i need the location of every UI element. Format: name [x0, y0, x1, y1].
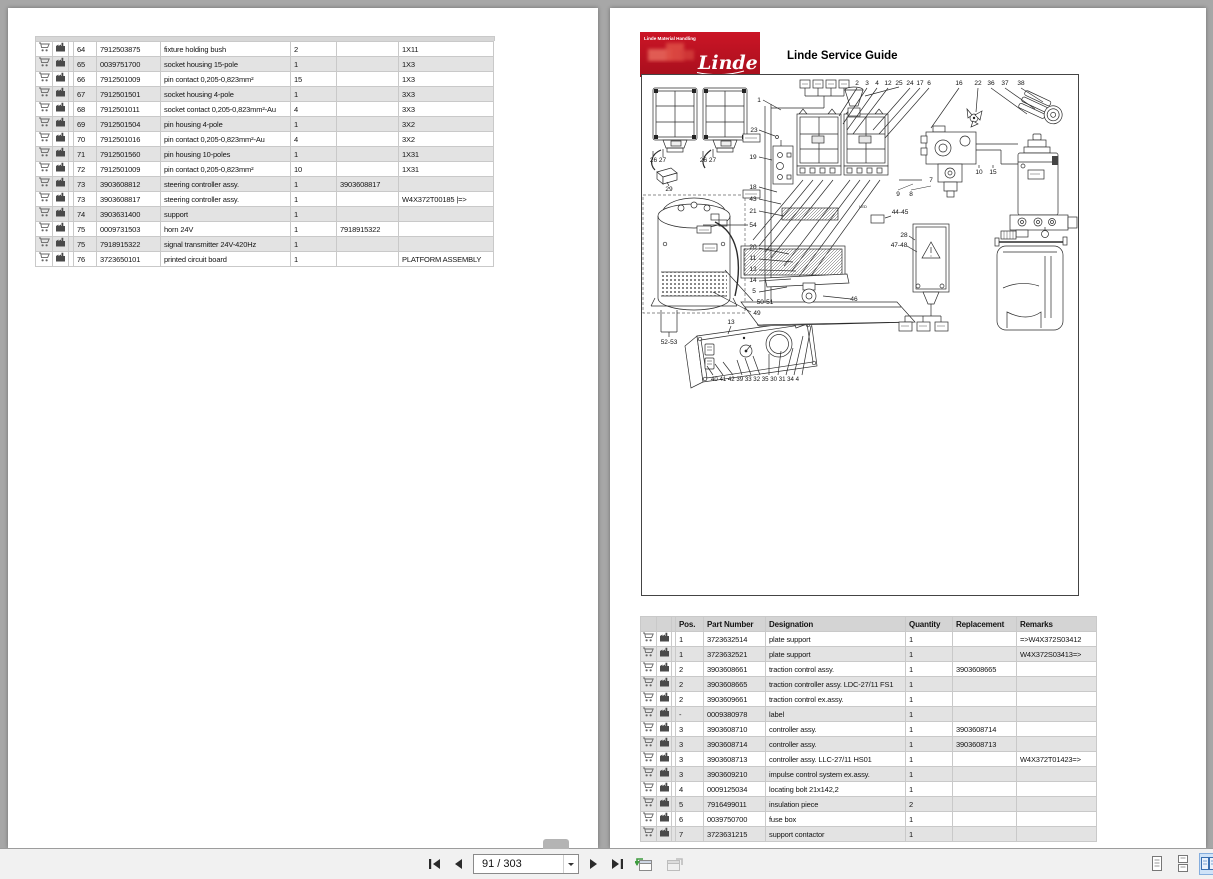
part-number-cell: 3903608713 — [704, 752, 766, 767]
next-view-icon — [665, 856, 684, 872]
add-to-cart-icon[interactable] — [36, 147, 53, 162]
pos-cell: 69 — [74, 117, 97, 132]
document-page-right: Linde Material Handling Linde Linde Serv… — [610, 8, 1206, 848]
factory-icon[interactable] — [657, 782, 672, 797]
parts-table-row: 763723650101printed circuit board1PLATFO… — [36, 252, 494, 267]
add-to-cart-icon[interactable] — [641, 767, 657, 782]
parts-table-row: 73723631215support contactor1 — [641, 827, 1097, 842]
diagram-callout: 2 — [855, 80, 859, 87]
facing-pages-layout-button[interactable] — [1200, 854, 1213, 874]
part-number-cell: 7918915322 — [97, 237, 161, 252]
diagram-callout: 38 — [1017, 80, 1025, 87]
part-number-cell: 0039751700 — [97, 57, 161, 72]
designation-cell: support — [161, 207, 291, 222]
remarks-cell: 3X3 — [399, 102, 494, 117]
designation-cell: pin housing 4-pole — [161, 117, 291, 132]
quantity-cell: 1 — [291, 177, 337, 192]
add-to-cart-icon[interactable] — [641, 647, 657, 662]
replacement-cell — [953, 812, 1017, 827]
parts-table-row: 33903609210impulse control system ex.ass… — [641, 767, 1097, 782]
diagram-callout: 19 — [749, 154, 757, 161]
replacement-cell: 3903608817 — [337, 177, 399, 192]
remarks-cell: 3X2 — [399, 117, 494, 132]
pos-cell: 66 — [74, 72, 97, 87]
add-to-cart-icon[interactable] — [36, 117, 53, 132]
diagram-callout: 15 — [989, 169, 997, 176]
part-number-cell: 3723632521 — [704, 647, 766, 662]
column-header: Pos. — [676, 617, 704, 632]
part-number-cell: 3903608714 — [704, 737, 766, 752]
part-number-cell: 3723632514 — [704, 632, 766, 647]
factory-icon[interactable] — [53, 72, 69, 87]
pos-cell: 76 — [74, 252, 97, 267]
remarks-cell: 1X11 — [399, 42, 494, 57]
remarks-cell: W4X372S03413=> — [1017, 647, 1097, 662]
factory-icon[interactable] — [657, 812, 672, 827]
parts-table-row: 13723632521plate support1W4X372S03413=> — [641, 647, 1097, 662]
part-number-cell: 3903608661 — [704, 662, 766, 677]
diagram-callout: 1 — [757, 97, 761, 104]
logo-top-text: Linde Material Handling — [644, 36, 696, 41]
designation-cell: controller assy. — [766, 722, 906, 737]
replacement-cell — [953, 707, 1017, 722]
designation-cell: pin contact 0,205-0,823mm² — [161, 162, 291, 177]
pos-cell: 64 — [74, 42, 97, 57]
pos-cell: 2 — [676, 677, 704, 692]
combobox-dropdown-icon[interactable] — [563, 855, 578, 873]
parts-table-row: 23903608661traction control assy.1390360… — [641, 662, 1097, 677]
diagram-callout: 43 — [749, 196, 757, 203]
pos-cell: 2 — [676, 692, 704, 707]
designation-cell: pin contact 0,205-0,823mm² — [161, 72, 291, 87]
factory-icon[interactable] — [53, 177, 69, 192]
parts-table-row: 647912503875fixture holding bush21X11 — [36, 42, 494, 57]
factory-icon[interactable] — [657, 827, 672, 842]
pos-cell: 7 — [676, 827, 704, 842]
add-to-cart-icon[interactable] — [36, 252, 53, 267]
factory-icon[interactable] — [53, 132, 69, 147]
designation-cell: traction control assy. — [766, 662, 906, 677]
add-to-cart-icon[interactable] — [641, 752, 657, 767]
part-number-cell: 3903608812 — [97, 177, 161, 192]
add-to-cart-icon[interactable] — [36, 192, 53, 207]
left-parts-table: 647912503875fixture holding bush21X11650… — [35, 41, 494, 267]
diagram-callout: 18 — [749, 184, 757, 191]
designation-cell: label — [766, 707, 906, 722]
replacement-cell — [953, 767, 1017, 782]
designation-cell: fixture holding bush — [161, 42, 291, 57]
quantity-cell: 1 — [906, 692, 953, 707]
diagram-callout: 37 — [1001, 80, 1009, 87]
diagram-callout: 23 — [750, 127, 758, 134]
parts-table-row: 727912501009pin contact 0,205-0,823mm²10… — [36, 162, 494, 177]
remarks-cell: W4X372T01423=> — [1017, 752, 1097, 767]
part-number-cell: 3903608710 — [704, 722, 766, 737]
remarks-cell: PLATFORM ASSEMBLY — [399, 252, 494, 267]
page-title: Linde Service Guide — [787, 50, 898, 62]
column-header: Designation — [766, 617, 906, 632]
factory-icon[interactable] — [53, 162, 69, 177]
pos-cell: 68 — [74, 102, 97, 117]
parts-table-row: 57916499011insulation piece2 — [641, 797, 1097, 812]
triangle-right-icon — [588, 858, 599, 870]
diagram-callout: 13 — [727, 319, 735, 326]
add-to-cart-icon[interactable] — [641, 737, 657, 752]
diagram-callout: 26 27 — [650, 157, 667, 164]
quantity-cell: 1 — [291, 207, 337, 222]
replacement-cell — [337, 42, 399, 57]
quantity-cell: 15 — [291, 72, 337, 87]
part-number-cell: 3903609661 — [704, 692, 766, 707]
remarks-cell — [399, 177, 494, 192]
diagram-callout: LED — [859, 204, 867, 209]
parts-table-row: 33903608714controller assy.13903608713 — [641, 737, 1097, 752]
quantity-cell: 1 — [291, 237, 337, 252]
part-number-cell: 7912501501 — [97, 87, 161, 102]
linde-logo: Linde Material Handling Linde — [640, 32, 760, 77]
factory-icon[interactable] — [657, 662, 672, 677]
part-number-cell: 7912501560 — [97, 147, 161, 162]
quantity-cell: 1 — [291, 57, 337, 72]
single-page-layout-button[interactable] — [1148, 854, 1166, 874]
remarks-cell — [1017, 737, 1097, 752]
factory-icon[interactable] — [657, 797, 672, 812]
part-number-cell: 7912501009 — [97, 72, 161, 87]
pos-cell: 4 — [676, 782, 704, 797]
factory-icon[interactable] — [53, 57, 69, 72]
pos-cell: - — [676, 707, 704, 722]
designation-cell: socket housing 4-pole — [161, 87, 291, 102]
factory-icon[interactable] — [657, 632, 672, 647]
triangle-left-icon — [453, 858, 464, 870]
diagram-callout: 26 27 — [700, 157, 717, 164]
factory-icon[interactable] — [53, 222, 69, 237]
right-parts-table: Pos.Part NumberDesignationQuantityReplac… — [640, 616, 1097, 842]
diagram-callout: 24 — [906, 80, 914, 87]
single-page-layout-icon — [1149, 855, 1165, 873]
add-to-cart-icon[interactable] — [641, 782, 657, 797]
parts-diagram-figure: 2341225241761622363738123191843215420111… — [641, 74, 1079, 596]
designation-cell: socket housing 15-pole — [161, 57, 291, 72]
diagram-callout: 8 — [909, 191, 913, 198]
factory-icon[interactable] — [657, 767, 672, 782]
left-parts-table-container: 647912503875fixture holding bush21X11650… — [35, 36, 495, 267]
add-to-cart-icon[interactable] — [641, 662, 657, 677]
designation-cell: plate support — [766, 647, 906, 662]
factory-icon[interactable] — [53, 117, 69, 132]
factory-icon[interactable] — [53, 87, 69, 102]
add-to-cart-icon[interactable] — [36, 87, 53, 102]
add-to-cart-icon[interactable] — [36, 132, 53, 147]
facing-pages-layout-icon — [1201, 855, 1213, 873]
parts-table-row: 33903608713controller assy. LLC-27/11 HS… — [641, 752, 1097, 767]
diagram-callout: 44-45 — [892, 209, 909, 216]
add-to-cart-icon[interactable] — [641, 692, 657, 707]
add-to-cart-icon[interactable] — [36, 177, 53, 192]
continuous-layout-icon — [1175, 855, 1191, 873]
factory-icon[interactable] — [53, 192, 69, 207]
quantity-cell: 1 — [291, 147, 337, 162]
pos-cell: 67 — [74, 87, 97, 102]
parts-table-row: -0009380978label1 — [641, 707, 1097, 722]
quantity-cell: 1 — [291, 87, 337, 102]
quantity-cell: 1 — [906, 812, 953, 827]
diagram-callout: 47-48 — [891, 242, 908, 249]
diagram-callout: 13 — [749, 266, 757, 273]
diagram-callout: 5 — [752, 288, 756, 295]
designation-cell: impulse control system ex.assy. — [766, 767, 906, 782]
remarks-cell — [399, 222, 494, 237]
part-number-cell: 0009380978 — [704, 707, 766, 722]
factory-icon[interactable] — [53, 237, 69, 252]
designation-cell: pin contact 0,205-0,823mm²-Au — [161, 132, 291, 147]
part-number-cell: 3903608665 — [704, 677, 766, 692]
replacement-cell — [337, 117, 399, 132]
parts-table-row: 650039751700socket housing 15-pole11X3 — [36, 57, 494, 72]
prev-page-button[interactable] — [451, 856, 466, 872]
page-layout-group — [1148, 854, 1213, 874]
pos-cell: 3 — [676, 752, 704, 767]
add-to-cart-icon[interactable] — [36, 72, 53, 87]
diagram-callout: 50-51 — [757, 299, 774, 306]
quantity-cell: 1 — [906, 752, 953, 767]
diagram-callout: 52-53 — [661, 339, 678, 346]
diagram-callout: 25 — [895, 80, 903, 87]
factory-icon[interactable] — [657, 752, 672, 767]
replacement-cell — [337, 252, 399, 267]
designation-cell: controller assy. — [766, 737, 906, 752]
designation-cell: locating bolt 21x142,2 — [766, 782, 906, 797]
factory-icon[interactable] — [657, 722, 672, 737]
page-number-combobox[interactable]: 91 / 303 — [473, 854, 579, 874]
part-number-cell: 3723650101 — [97, 252, 161, 267]
remarks-cell — [1017, 767, 1097, 782]
add-to-cart-icon[interactable] — [641, 827, 657, 842]
part-number-cell: 7912503875 — [97, 42, 161, 57]
replacement-cell: 3903608713 — [953, 737, 1017, 752]
part-number-cell: 0009731503 — [97, 222, 161, 237]
viewer-toolbar: 91 / 303 — [0, 848, 1213, 879]
parts-table-row: 733903608812steering controller assy.139… — [36, 177, 494, 192]
designation-cell: horn 24V — [161, 222, 291, 237]
add-to-cart-icon[interactable] — [36, 162, 53, 177]
remarks-cell: 1X3 — [399, 72, 494, 87]
designation-cell: pin housing 10-poles — [161, 147, 291, 162]
skip-to-last-icon — [610, 858, 624, 870]
remarks-cell: 1X31 — [399, 162, 494, 177]
quantity-cell: 1 — [906, 632, 953, 647]
factory-icon[interactable] — [657, 647, 672, 662]
pos-cell: 75 — [74, 237, 97, 252]
part-number-cell: 7912501011 — [97, 102, 161, 117]
part-number-cell: 7912501016 — [97, 132, 161, 147]
diagram-callout: 7 — [929, 177, 933, 184]
quantity-cell: 1 — [906, 677, 953, 692]
designation-cell: printed circuit board — [161, 252, 291, 267]
add-to-cart-icon[interactable] — [36, 57, 53, 72]
diagram-callout: 29 — [665, 186, 673, 193]
toolbar-collapse-handle[interactable] — [543, 839, 569, 849]
diagram-callout: 9 — [896, 191, 900, 198]
parts-table-row: 677912501501socket housing 4-pole13X3 — [36, 87, 494, 102]
pos-cell: 2 — [676, 662, 704, 677]
replacement-cell: 3903608665 — [953, 662, 1017, 677]
parts-table-row: 23903608665traction controller assy. LDC… — [641, 677, 1097, 692]
pos-cell: 1 — [676, 647, 704, 662]
remarks-cell: =>W4X372S03412 — [1017, 632, 1097, 647]
quantity-cell: 1 — [291, 117, 337, 132]
replacement-cell — [337, 87, 399, 102]
first-page-button[interactable] — [426, 856, 444, 872]
page-navigation-group: 91 / 303 — [426, 849, 686, 879]
parts-table-row: 13723632514plate support1=>W4X372S03412 — [641, 632, 1097, 647]
pos-cell: 73 — [74, 192, 97, 207]
replacement-cell — [337, 132, 399, 147]
quantity-cell: 1 — [906, 662, 953, 677]
quantity-cell: 1 — [906, 737, 953, 752]
designation-cell: steering controller assy. — [161, 177, 291, 192]
designation-cell: traction control ex.assy. — [766, 692, 906, 707]
replacement-cell — [337, 237, 399, 252]
remarks-cell — [1017, 707, 1097, 722]
replacement-cell — [337, 192, 399, 207]
add-to-cart-icon[interactable] — [641, 677, 657, 692]
diagram-callout: 36 — [987, 80, 995, 87]
replacement-cell — [953, 782, 1017, 797]
quantity-cell: 1 — [906, 782, 953, 797]
add-to-cart-icon[interactable] — [641, 707, 657, 722]
parts-table-row: 23903609661traction control ex.assy.1 — [641, 692, 1097, 707]
part-number-cell: 3723631215 — [704, 827, 766, 842]
diagram-callout: 17 — [916, 80, 924, 87]
part-number-cell: 7912501504 — [97, 117, 161, 132]
parts-table-row: 697912501504pin housing 4-pole13X2 — [36, 117, 494, 132]
pos-cell: 3 — [676, 737, 704, 752]
part-number-cell: 7912501009 — [97, 162, 161, 177]
quantity-cell: 1 — [291, 192, 337, 207]
replacement-cell — [953, 647, 1017, 662]
part-number-cell: 0039750700 — [704, 812, 766, 827]
pos-cell: 73 — [74, 177, 97, 192]
part-number-cell: 3903631400 — [97, 207, 161, 222]
add-to-cart-icon[interactable] — [641, 812, 657, 827]
designation-cell: controller assy. LLC-27/11 HS01 — [766, 752, 906, 767]
previous-view-icon — [635, 856, 654, 872]
quantity-cell: 2 — [291, 42, 337, 57]
pos-cell: 75 — [74, 222, 97, 237]
remarks-cell — [1017, 722, 1097, 737]
factory-icon[interactable] — [53, 102, 69, 117]
replacement-cell — [953, 752, 1017, 767]
remarks-cell — [1017, 677, 1097, 692]
replacement-cell — [337, 72, 399, 87]
designation-cell: fuse box — [766, 812, 906, 827]
replacement-cell: 7918915322 — [337, 222, 399, 237]
replacement-cell — [953, 797, 1017, 812]
remarks-cell — [1017, 827, 1097, 842]
pos-cell: 74 — [74, 207, 97, 222]
parts-table-row: 40009125034locating bolt 21x142,21 — [641, 782, 1097, 797]
add-to-cart-icon[interactable] — [641, 632, 657, 647]
diagram-callout: 11 — [750, 255, 757, 262]
quantity-cell: 1 — [906, 827, 953, 842]
add-to-cart-icon[interactable] — [36, 42, 53, 57]
designation-cell: steering controller assy. — [161, 192, 291, 207]
add-to-cart-icon[interactable] — [36, 102, 53, 117]
part-number-cell: 0009125034 — [704, 782, 766, 797]
factory-icon[interactable] — [53, 147, 69, 162]
factory-icon[interactable] — [53, 252, 69, 267]
diagram-callout: 10 — [975, 169, 983, 176]
factory-icon[interactable] — [657, 677, 672, 692]
diagram-callout: 40 41 42 39 33 32 35 30 31 34 4 — [711, 377, 800, 383]
part-number-cell: 7916499011 — [704, 797, 766, 812]
previous-view-button[interactable] — [633, 854, 656, 874]
replacement-cell — [337, 147, 399, 162]
diagram-callout: 46 — [850, 296, 858, 303]
factory-icon[interactable] — [657, 707, 672, 722]
designation-cell: signal transmitter 24V-420Hz — [161, 237, 291, 252]
pos-cell: 3 — [676, 767, 704, 782]
page-indicator[interactable]: 91 / 303 — [474, 858, 522, 870]
table-header-row: Pos.Part NumberDesignationQuantityReplac… — [641, 617, 1097, 632]
parts-table-row: 750009731503horn 24V17918915322 — [36, 222, 494, 237]
remarks-cell: 1X3 — [399, 57, 494, 72]
parts-table-row: 757918915322signal transmitter 24V-420Hz… — [36, 237, 494, 252]
pos-cell: 72 — [74, 162, 97, 177]
designation-cell: traction controller assy. LDC-27/11 FS1 — [766, 677, 906, 692]
add-to-cart-icon[interactable] — [36, 222, 53, 237]
add-to-cart-icon[interactable] — [36, 207, 53, 222]
column-header: Remarks — [1017, 617, 1097, 632]
parts-table-row: 667912501009pin contact 0,205-0,823mm²15… — [36, 72, 494, 87]
remarks-cell: 3X2 — [399, 132, 494, 147]
add-to-cart-icon[interactable] — [641, 797, 657, 812]
diagram-callout: 3 — [865, 80, 869, 87]
pdf-viewer-window: { "toolbar": { "page_indicator": "91 / 3… — [0, 0, 1213, 878]
continuous-layout-button[interactable] — [1174, 854, 1192, 874]
quantity-cell: 4 — [291, 132, 337, 147]
right-parts-table-container: Pos.Part NumberDesignationQuantityReplac… — [640, 616, 1098, 842]
add-to-cart-icon[interactable] — [641, 722, 657, 737]
factory-icon[interactable] — [53, 42, 69, 57]
pos-cell: 65 — [74, 57, 97, 72]
next-view-button[interactable] — [663, 854, 686, 874]
factory-icon[interactable] — [657, 737, 672, 752]
last-page-button[interactable] — [608, 856, 626, 872]
remarks-cell — [1017, 662, 1097, 677]
factory-icon[interactable] — [53, 207, 69, 222]
parts-table-row: 733903608817steering controller assy.1W4… — [36, 192, 494, 207]
remarks-cell: 3X3 — [399, 87, 494, 102]
diagram-callout: 14 — [749, 277, 757, 284]
replacement-cell — [953, 677, 1017, 692]
remarks-cell: 1X31 — [399, 147, 494, 162]
replacement-cell — [337, 102, 399, 117]
quantity-cell: 1 — [906, 707, 953, 722]
next-page-button[interactable] — [586, 856, 601, 872]
parts-table-row: 717912501560pin housing 10-poles11X31 — [36, 147, 494, 162]
factory-icon[interactable] — [657, 692, 672, 707]
add-to-cart-icon[interactable] — [36, 237, 53, 252]
part-number-cell: 3903608817 — [97, 192, 161, 207]
logo-brand-text: Linde — [697, 52, 758, 74]
diagram-callout: 22 — [974, 80, 982, 87]
designation-cell: plate support — [766, 632, 906, 647]
replacement-cell — [337, 57, 399, 72]
quantity-cell: 1 — [906, 722, 953, 737]
remarks-cell — [1017, 692, 1097, 707]
